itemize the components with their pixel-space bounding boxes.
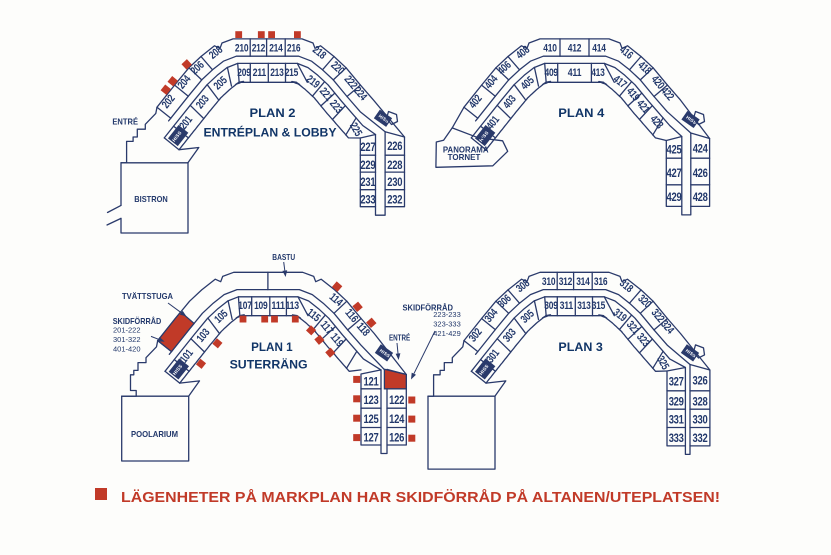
svg-text:ENTRÉ: ENTRÉ — [112, 116, 138, 126]
svg-text:333: 333 — [669, 433, 684, 445]
svg-text:215: 215 — [285, 67, 299, 79]
svg-text:LÄGENHETER PÅ MARKPLAN HAR SKI: LÄGENHETER PÅ MARKPLAN HAR SKIDFÖRRÅD PÅ… — [121, 489, 720, 506]
svg-text:228: 228 — [387, 160, 403, 172]
svg-text:BASTU: BASTU — [272, 252, 295, 262]
svg-text:PLAN 4: PLAN 4 — [558, 106, 604, 120]
svg-text:326: 326 — [693, 375, 708, 387]
svg-text:209: 209 — [237, 67, 251, 79]
svg-text:429: 429 — [667, 192, 682, 204]
svg-text:428: 428 — [693, 192, 709, 204]
svg-text:332: 332 — [693, 433, 708, 445]
svg-text:410: 410 — [543, 43, 557, 55]
svg-text:231: 231 — [360, 177, 376, 189]
svg-text:125: 125 — [364, 414, 380, 426]
svg-text:425: 425 — [667, 145, 683, 157]
svg-text:213: 213 — [270, 67, 284, 79]
svg-text:SKIDFÖRRÅD: SKIDFÖRRÅD — [113, 316, 162, 326]
svg-text:107: 107 — [238, 300, 252, 312]
svg-text:414: 414 — [592, 43, 606, 55]
svg-text:413: 413 — [591, 67, 605, 79]
svg-text:123: 123 — [364, 395, 379, 407]
svg-text:323-333: 323-333 — [433, 320, 461, 329]
svg-text:426: 426 — [693, 168, 708, 180]
svg-text:109: 109 — [254, 300, 268, 312]
svg-text:111: 111 — [271, 300, 285, 312]
svg-text:212: 212 — [252, 43, 266, 55]
svg-text:113: 113 — [286, 300, 300, 312]
svg-text:232: 232 — [387, 195, 402, 207]
svg-text:309: 309 — [544, 300, 558, 312]
svg-text:313: 313 — [577, 300, 591, 312]
svg-text:330: 330 — [693, 415, 708, 427]
svg-text:216: 216 — [287, 43, 301, 55]
svg-text:TORNET: TORNET — [448, 152, 481, 162]
svg-text:ENTRÉPLAN & LOBBY: ENTRÉPLAN & LOBBY — [204, 125, 337, 140]
svg-text:412: 412 — [568, 43, 582, 55]
svg-text:201-222: 201-222 — [113, 326, 141, 335]
svg-text:124: 124 — [389, 414, 405, 426]
svg-text:314: 314 — [576, 276, 590, 288]
svg-text:424: 424 — [693, 143, 709, 155]
svg-text:315: 315 — [592, 300, 606, 312]
svg-text:BISTRON: BISTRON — [134, 194, 168, 204]
svg-text:233: 233 — [360, 195, 375, 207]
svg-text:126: 126 — [389, 433, 404, 445]
svg-text:427: 427 — [667, 168, 682, 180]
svg-text:328: 328 — [693, 396, 709, 408]
svg-text:409: 409 — [545, 67, 559, 79]
svg-text:TVÄTTSTUGA: TVÄTTSTUGA — [122, 291, 173, 301]
svg-text:121: 121 — [364, 377, 380, 389]
svg-text:301-322: 301-322 — [113, 335, 141, 344]
svg-text:229: 229 — [360, 160, 375, 172]
svg-text:POOLARIUM: POOLARIUM — [131, 429, 178, 439]
svg-text:421-429: 421-429 — [433, 329, 461, 338]
svg-text:214: 214 — [269, 43, 283, 55]
svg-text:227: 227 — [360, 142, 375, 154]
svg-text:211: 211 — [253, 67, 267, 79]
svg-text:230: 230 — [387, 177, 402, 189]
svg-text:223-233: 223-233 — [433, 310, 461, 319]
svg-text:310: 310 — [542, 276, 556, 288]
svg-text:316: 316 — [594, 276, 608, 288]
svg-text:PLAN 3: PLAN 3 — [558, 340, 603, 354]
svg-text:PLAN 2: PLAN 2 — [250, 106, 296, 120]
svg-text:ENTRÉ: ENTRÉ — [389, 332, 411, 342]
svg-text:327: 327 — [669, 376, 684, 388]
svg-text:401-420: 401-420 — [113, 345, 141, 354]
svg-text:331: 331 — [669, 415, 685, 427]
svg-text:127: 127 — [364, 433, 379, 445]
svg-text:226: 226 — [387, 141, 402, 153]
svg-text:311: 311 — [560, 300, 574, 312]
svg-text:411: 411 — [568, 67, 582, 79]
svg-text:122: 122 — [389, 395, 404, 407]
svg-text:329: 329 — [669, 396, 684, 408]
svg-text:210: 210 — [235, 43, 249, 55]
svg-text:PLAN 1: PLAN 1 — [251, 340, 293, 354]
svg-text:312: 312 — [559, 276, 573, 288]
svg-text:SUTERRÄNG: SUTERRÄNG — [230, 357, 308, 372]
